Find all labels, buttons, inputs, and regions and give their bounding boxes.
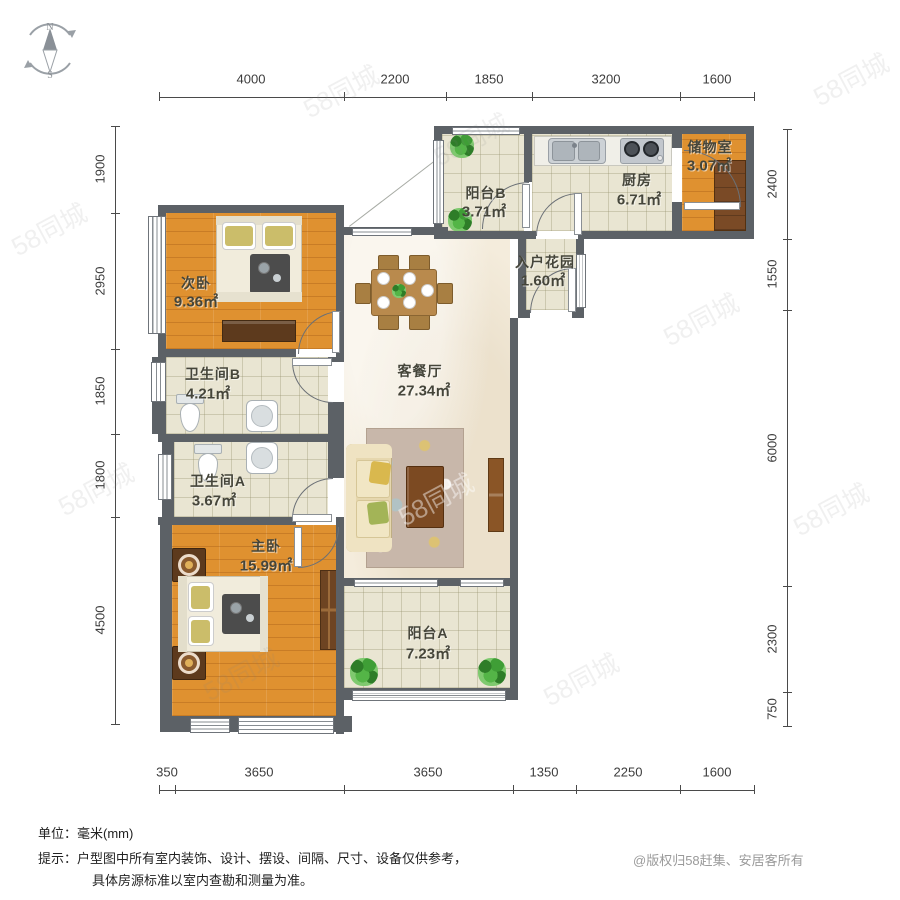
plate [403, 296, 416, 309]
wall-segment [336, 517, 344, 734]
lamp-bulb [185, 561, 193, 569]
potted-plant [478, 658, 506, 686]
dimension-line-right [787, 129, 788, 726]
room-name-label: 主卧 [251, 536, 281, 556]
room-area-label: 27.34㎡ [398, 380, 451, 401]
watermark-text: 58同城 [656, 283, 745, 354]
sink-faucet [572, 143, 577, 148]
potted-plant [450, 134, 474, 158]
dimension-line-top [159, 97, 754, 98]
dimension-label: 4500 [93, 606, 108, 635]
room-name-label: 客餐厅 [398, 361, 443, 381]
dimension-label: 1850 [93, 377, 108, 406]
room-area-label: 3.71㎡ [462, 201, 506, 222]
basin-bowl [251, 447, 273, 469]
blanket-dot [273, 274, 281, 282]
wall-segment [158, 517, 296, 525]
window [190, 718, 230, 733]
window [433, 140, 444, 224]
tip-note-line2: 具体房源标准以室内查勘和测量为准。 [92, 870, 313, 889]
room-name-label: 卫生间B [185, 364, 241, 384]
folded-blanket [250, 254, 290, 294]
door-leaf [684, 202, 740, 210]
dimension-label: 1800 [93, 461, 108, 490]
bed-headboard [178, 576, 187, 652]
cooktop-burner [643, 141, 659, 157]
wall-segment [158, 205, 344, 213]
pillow-blanket [225, 226, 253, 246]
dimension-tick [783, 692, 792, 693]
window [352, 690, 506, 701]
wall-segment [328, 402, 344, 478]
dimension-tick [111, 349, 120, 350]
room-name-label: 阳台A [407, 623, 448, 643]
bed-foot-band [260, 576, 268, 652]
blanket-dot [258, 262, 270, 274]
dimension-label: 1900 [93, 155, 108, 184]
sofa-back [346, 458, 356, 538]
compass-s-label: S [47, 70, 53, 80]
dimension-label: 2300 [765, 625, 780, 654]
lamp-bulb [185, 659, 193, 667]
bed-foot-band [216, 292, 302, 302]
wall-segment [158, 434, 336, 442]
dimension-tick [111, 724, 120, 725]
dimension-tick [111, 434, 120, 435]
door-leaf [332, 311, 340, 353]
window [238, 717, 334, 734]
room-name-label: 厨房 [622, 170, 652, 190]
dimension-tick [344, 785, 345, 794]
wall-segment [158, 205, 166, 216]
watermark-text: 58同城 [296, 55, 385, 126]
room-area-label: 15.99㎡ [240, 555, 293, 576]
dimension-tick [344, 92, 345, 101]
room-area-label: 3.67㎡ [192, 490, 236, 511]
wall-segment [160, 517, 172, 716]
window [148, 216, 166, 334]
dimension-tick [111, 517, 120, 518]
watermark-text: 58同城 [4, 193, 93, 264]
wall-segment [672, 134, 682, 148]
dimension-tick [754, 785, 755, 794]
watermark-text: 58同城 [806, 43, 895, 114]
dimension-tick [111, 126, 120, 127]
door-leaf [292, 514, 332, 522]
window [151, 362, 166, 402]
wall-segment [524, 134, 532, 182]
dimension-label: 2250 [614, 765, 643, 780]
dimension-label: 1550 [765, 260, 780, 289]
dimension-label: 750 [765, 698, 780, 720]
diagonal-boundary-line [349, 153, 445, 227]
dimension-tick [532, 92, 533, 101]
dimension-label: 1600 [703, 765, 732, 780]
room-area-label: 6.71㎡ [617, 189, 661, 210]
dimension-tick [754, 92, 755, 101]
dimension-tick [783, 239, 792, 240]
folded-blanket [222, 594, 264, 634]
compass-needle-south [43, 50, 57, 72]
dimension-label: 350 [156, 765, 178, 780]
room-area-label: 1.60㎡ [521, 270, 565, 291]
window [354, 579, 438, 587]
dimension-label: 3650 [414, 765, 443, 780]
cooktop-knob [657, 155, 663, 161]
dimension-label: 4000 [237, 72, 266, 87]
door-leaf [292, 358, 332, 366]
dimension-label: 6000 [765, 434, 780, 463]
coffee-table [406, 466, 444, 528]
watermark-text: 58同城 [786, 473, 875, 544]
room-name-label: 卫生间A [190, 471, 246, 491]
pillow-blanket [265, 226, 293, 246]
compass-n-label: N [46, 22, 53, 33]
wall-segment [672, 202, 682, 231]
dining-chair [378, 314, 399, 330]
dimension-label: 3650 [245, 765, 274, 780]
window [352, 228, 412, 236]
dimension-tick [783, 129, 792, 130]
dimension-label: 3200 [592, 72, 621, 87]
wall-segment [158, 349, 296, 357]
dimension-tick [159, 785, 160, 794]
door-leaf [522, 184, 530, 228]
watermark-text: 58同城 [536, 643, 625, 714]
dimension-tick [783, 310, 792, 311]
table-plant [392, 284, 406, 298]
wall-segment [510, 578, 518, 700]
plate [377, 272, 390, 285]
dimension-label: 2200 [381, 72, 410, 87]
wall-segment [746, 126, 754, 239]
tip-note-line1: 提示：户型图中所有室内装饰、设计、摆设、间隔、尺寸、设备仅供参考， [38, 848, 467, 867]
plate [403, 272, 416, 285]
tv-cabinet [488, 458, 504, 532]
dimension-label: 2400 [765, 170, 780, 199]
window [576, 254, 586, 308]
dimension-tick [680, 785, 681, 794]
dimension-tick [576, 785, 577, 794]
blanket-dot [246, 614, 254, 622]
pillow-blanket [191, 586, 210, 609]
dining-chair [437, 283, 453, 304]
cooktop-burner [624, 141, 640, 157]
unit-note: 单位：毫米(mm) [38, 823, 133, 842]
room-area-label: 9.36㎡ [174, 291, 218, 312]
dimension-label: 1350 [530, 765, 559, 780]
dimension-label: 1850 [475, 72, 504, 87]
copyright-note: @版权归58赶集、安居客所有 [633, 850, 804, 869]
wall-segment [578, 231, 754, 239]
potted-plant [350, 658, 378, 686]
sofa-armrest [346, 538, 392, 552]
dimension-tick [783, 586, 792, 587]
wall-segment [434, 231, 536, 239]
wall-segment [518, 310, 530, 318]
dimension-tick [783, 726, 792, 727]
throw-pillow [367, 501, 390, 525]
dimension-tick [680, 92, 681, 101]
dining-chair [355, 283, 371, 304]
sofa-armrest [346, 444, 392, 458]
dimension-label: 1600 [703, 72, 732, 87]
plate [421, 284, 434, 297]
window [158, 454, 172, 500]
pillow-blanket [191, 620, 210, 643]
dimension-tick [111, 213, 120, 214]
dining-chair [409, 314, 430, 330]
compass: N S [20, 18, 80, 80]
door-leaf [294, 527, 302, 567]
room-area-label: 7.23㎡ [406, 643, 450, 664]
door-leaf [568, 268, 576, 312]
window [452, 127, 520, 135]
dimension-tick [446, 92, 447, 101]
dimension-label: 2950 [93, 267, 108, 296]
blanket-dot [230, 602, 242, 614]
dimension-tick [159, 92, 160, 101]
room-area-label: 4.21㎡ [186, 383, 230, 404]
dimension-line-left [115, 126, 116, 724]
window [460, 579, 504, 587]
dimension-tick [175, 785, 176, 794]
sink-basin [578, 141, 600, 161]
room-area-label: 3.07㎡ [687, 155, 731, 176]
wall-segment [510, 318, 518, 586]
dimension-tick [513, 785, 514, 794]
dimension-line-bottom [159, 790, 754, 791]
basin-bowl [251, 405, 273, 427]
plate [377, 296, 390, 309]
dresser [222, 320, 296, 342]
floorplan-page: { "compass": {"north": "N", "south": "S"… [0, 0, 900, 900]
throw-pillow [369, 461, 392, 486]
door-leaf [574, 193, 582, 235]
